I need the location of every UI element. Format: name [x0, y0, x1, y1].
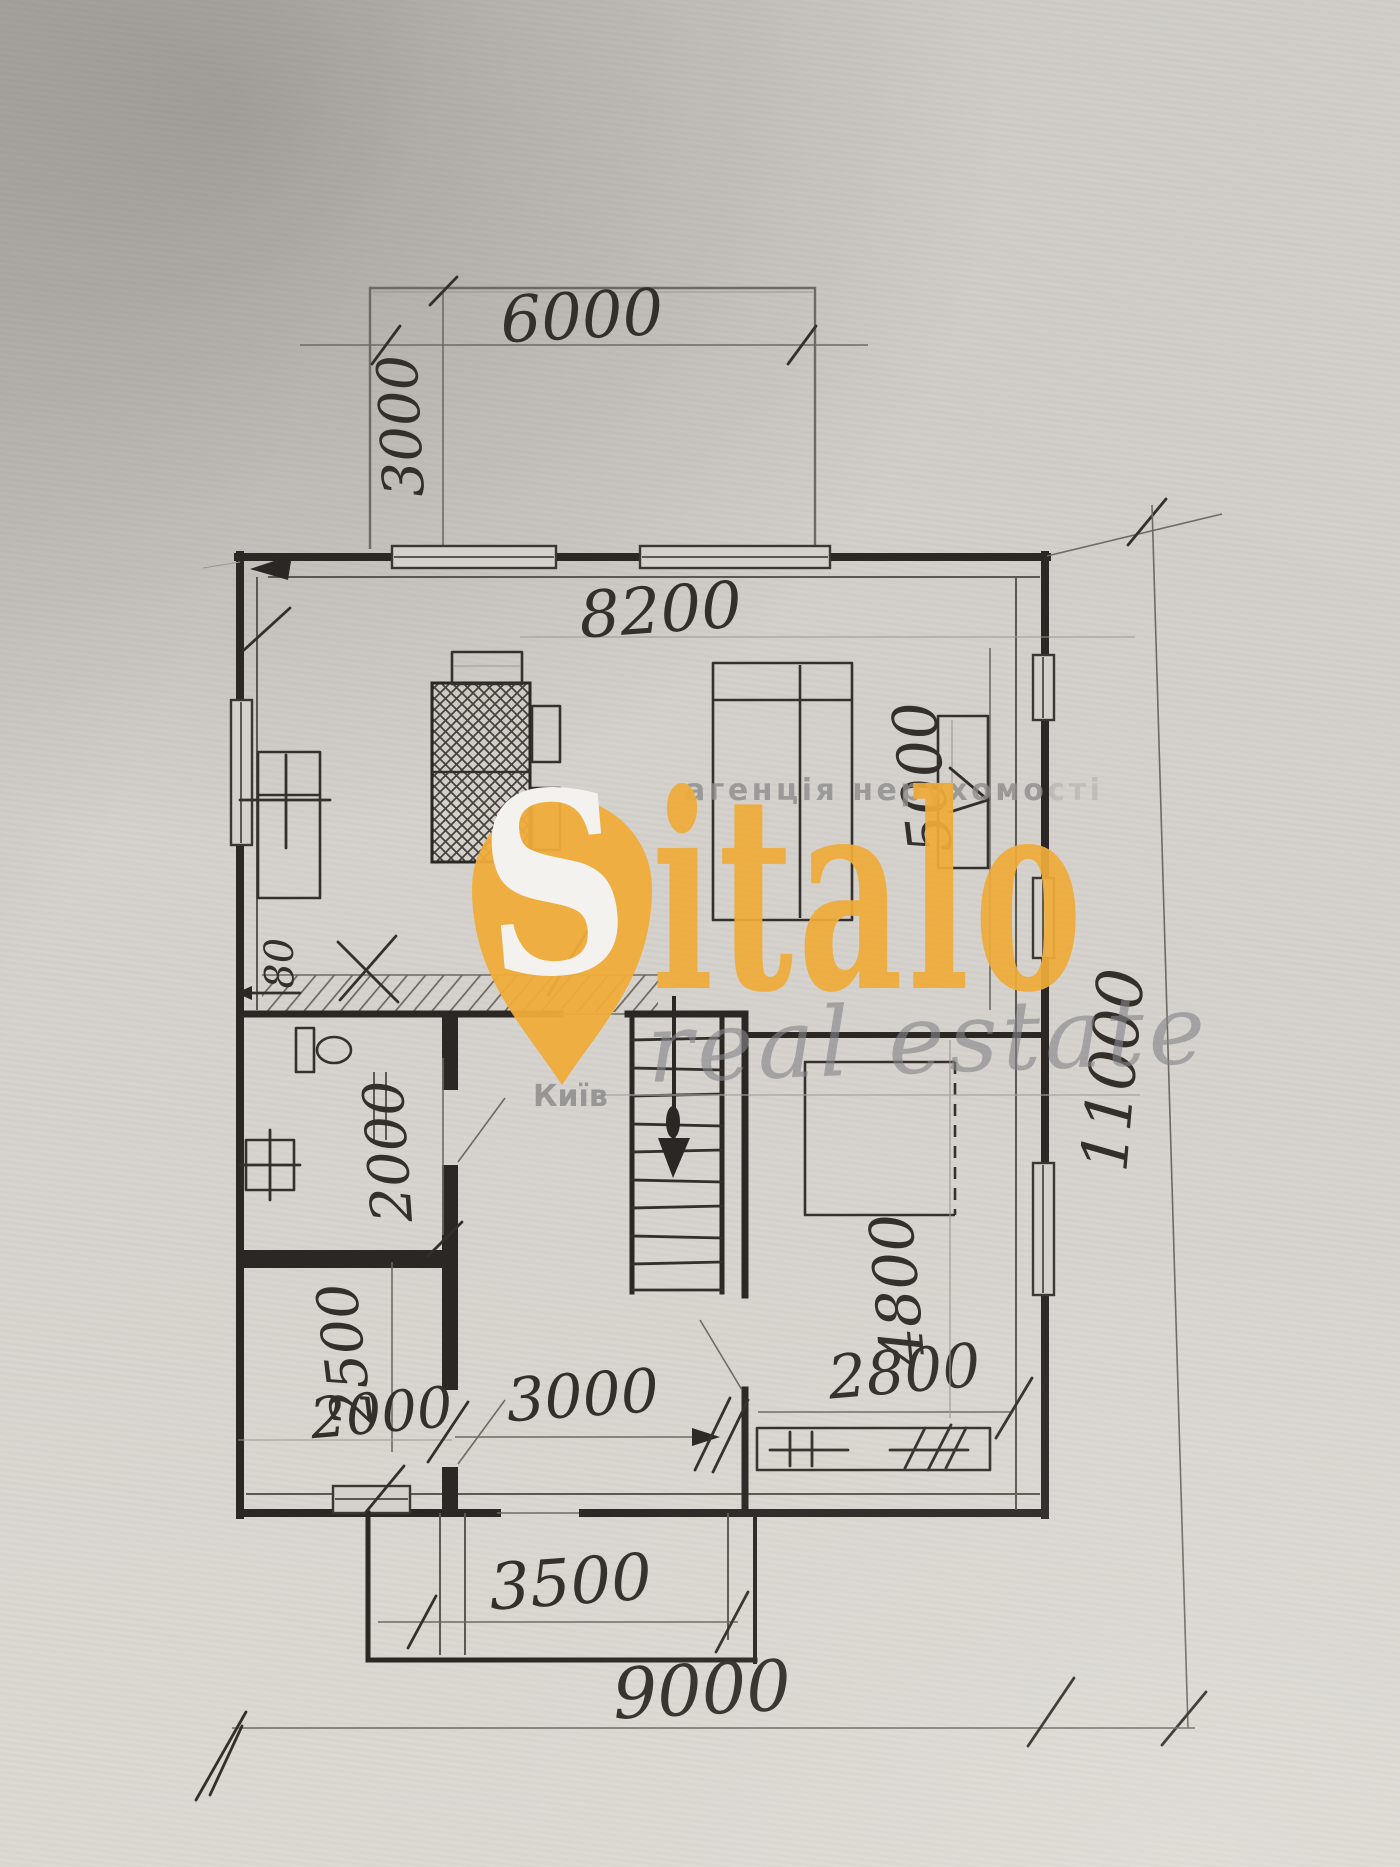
- dim-porch-width: 3500: [378, 1540, 748, 1652]
- floor-plan-drawing: 6000 3000: [0, 0, 1400, 1867]
- window-right-wall-upper: [1033, 655, 1054, 720]
- left-room-door-leaf: [458, 1400, 505, 1464]
- logo-letter-s: S: [470, 732, 639, 1037]
- porch-width-label: 3500: [487, 1540, 655, 1625]
- floor-plan-photo: 6000 3000: [0, 0, 1400, 1867]
- window-bottom-left-room: [333, 1486, 410, 1513]
- bedroom-door-leaf: [700, 1320, 742, 1390]
- watermark: агенція нерухомості Київ S italo real es…: [470, 732, 1211, 1114]
- house-width-label: 9000: [611, 1644, 793, 1735]
- dim-left-room-width: 2000: [238, 1375, 468, 1462]
- terrace-depth-label: 3000: [365, 353, 437, 499]
- window-right-wall-bedroom: [1033, 1163, 1054, 1295]
- living-width-label: 8200: [577, 568, 745, 653]
- toilet: [296, 1028, 351, 1072]
- radiator-left-wall: [240, 752, 330, 898]
- logo-tagline: real estate: [645, 973, 1211, 1105]
- city-watermark-label: Київ: [533, 1079, 608, 1114]
- hall-width-label: 3000: [504, 1356, 661, 1436]
- washbasin: [240, 1130, 300, 1200]
- dim-terrace-depth: 3000: [365, 277, 457, 549]
- bedroom-depth-label: 4800: [857, 1211, 940, 1370]
- dim-house-depth: 11000: [1068, 505, 1206, 1745]
- bathroom-depth-label: 2000: [351, 1078, 426, 1226]
- wall-mark-label: 80: [257, 937, 304, 989]
- dim-house-width: 9000: [196, 1644, 1195, 1800]
- terrace-width-label: 6000: [499, 276, 666, 358]
- bathroom-door-leaf: [458, 1098, 505, 1162]
- left-room-width-label: 2000: [307, 1375, 456, 1452]
- dim-hall-width: 3000: [455, 1356, 748, 1472]
- window-top-right: [640, 546, 830, 568]
- radiator-bedroom: [757, 1425, 990, 1470]
- window-left-wall: [231, 700, 252, 845]
- window-top-left: [392, 546, 556, 568]
